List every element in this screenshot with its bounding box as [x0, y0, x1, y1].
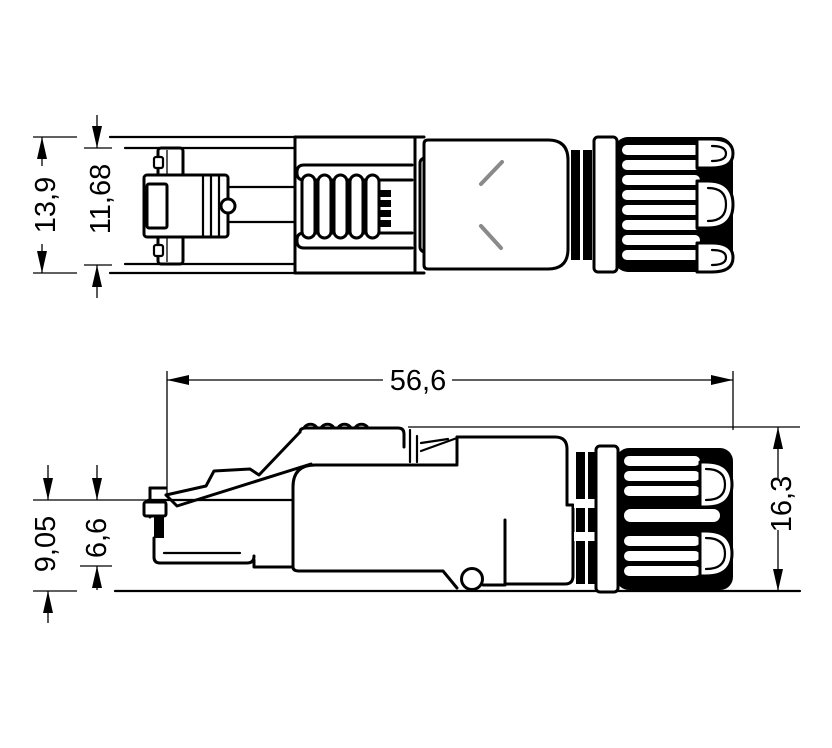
side-view: 56,6 9,05 6,6 16,3 — [30, 365, 800, 623]
dim-label-9-05: 9,05 — [30, 516, 62, 572]
cap-fingers-top-view — [697, 139, 733, 272]
dimension-overall-width: 13,9 — [30, 137, 77, 273]
housing-side-view — [293, 437, 573, 590]
ratchet-teeth — [380, 190, 391, 227]
arrowhead — [92, 265, 102, 287]
contact-block — [144, 175, 295, 237]
dimension-overall-height: 16,3 — [766, 427, 798, 591]
housing-top-view — [424, 140, 568, 269]
plug-nose-side-view — [144, 488, 293, 567]
arrowhead — [711, 375, 733, 385]
connector-drawing-svg: 13,9 11,68 — [0, 0, 832, 748]
arrowhead — [167, 375, 189, 385]
coupling-rings-top-view — [571, 150, 592, 260]
dim-label-56-6: 56,6 — [390, 365, 446, 397]
dim-label-16-3: 16,3 — [766, 476, 798, 532]
dim-label-11-68: 11,68 — [85, 164, 117, 234]
arrowhead — [43, 478, 53, 500]
strain-relief-cap-side-view — [596, 446, 733, 592]
dimension-body-width: 11,68 — [84, 115, 117, 298]
arrowhead — [43, 591, 53, 613]
arrowhead — [773, 569, 783, 591]
arrowhead — [92, 126, 102, 148]
top-view: 13,9 11,68 — [30, 115, 733, 298]
dimension-nose-height: 6,6 — [80, 465, 113, 590]
arrowhead — [37, 251, 47, 273]
dim-label-6-6: 6,6 — [81, 518, 113, 558]
arrowhead — [773, 427, 783, 449]
cap-flange-side-view — [596, 446, 618, 592]
arrowhead — [92, 566, 102, 588]
technical-drawing-canvas: 13,9 11,68 — [0, 0, 832, 748]
cap-flange-top-view — [594, 137, 617, 272]
strain-relief-cap-top-view — [594, 137, 733, 272]
pivot-hole — [221, 199, 235, 213]
test-loop — [462, 569, 483, 590]
arrowhead — [37, 137, 47, 159]
dim-label-13-9: 13,9 — [30, 177, 62, 233]
arrowhead — [92, 478, 102, 500]
wire-spring-channel — [297, 165, 412, 248]
